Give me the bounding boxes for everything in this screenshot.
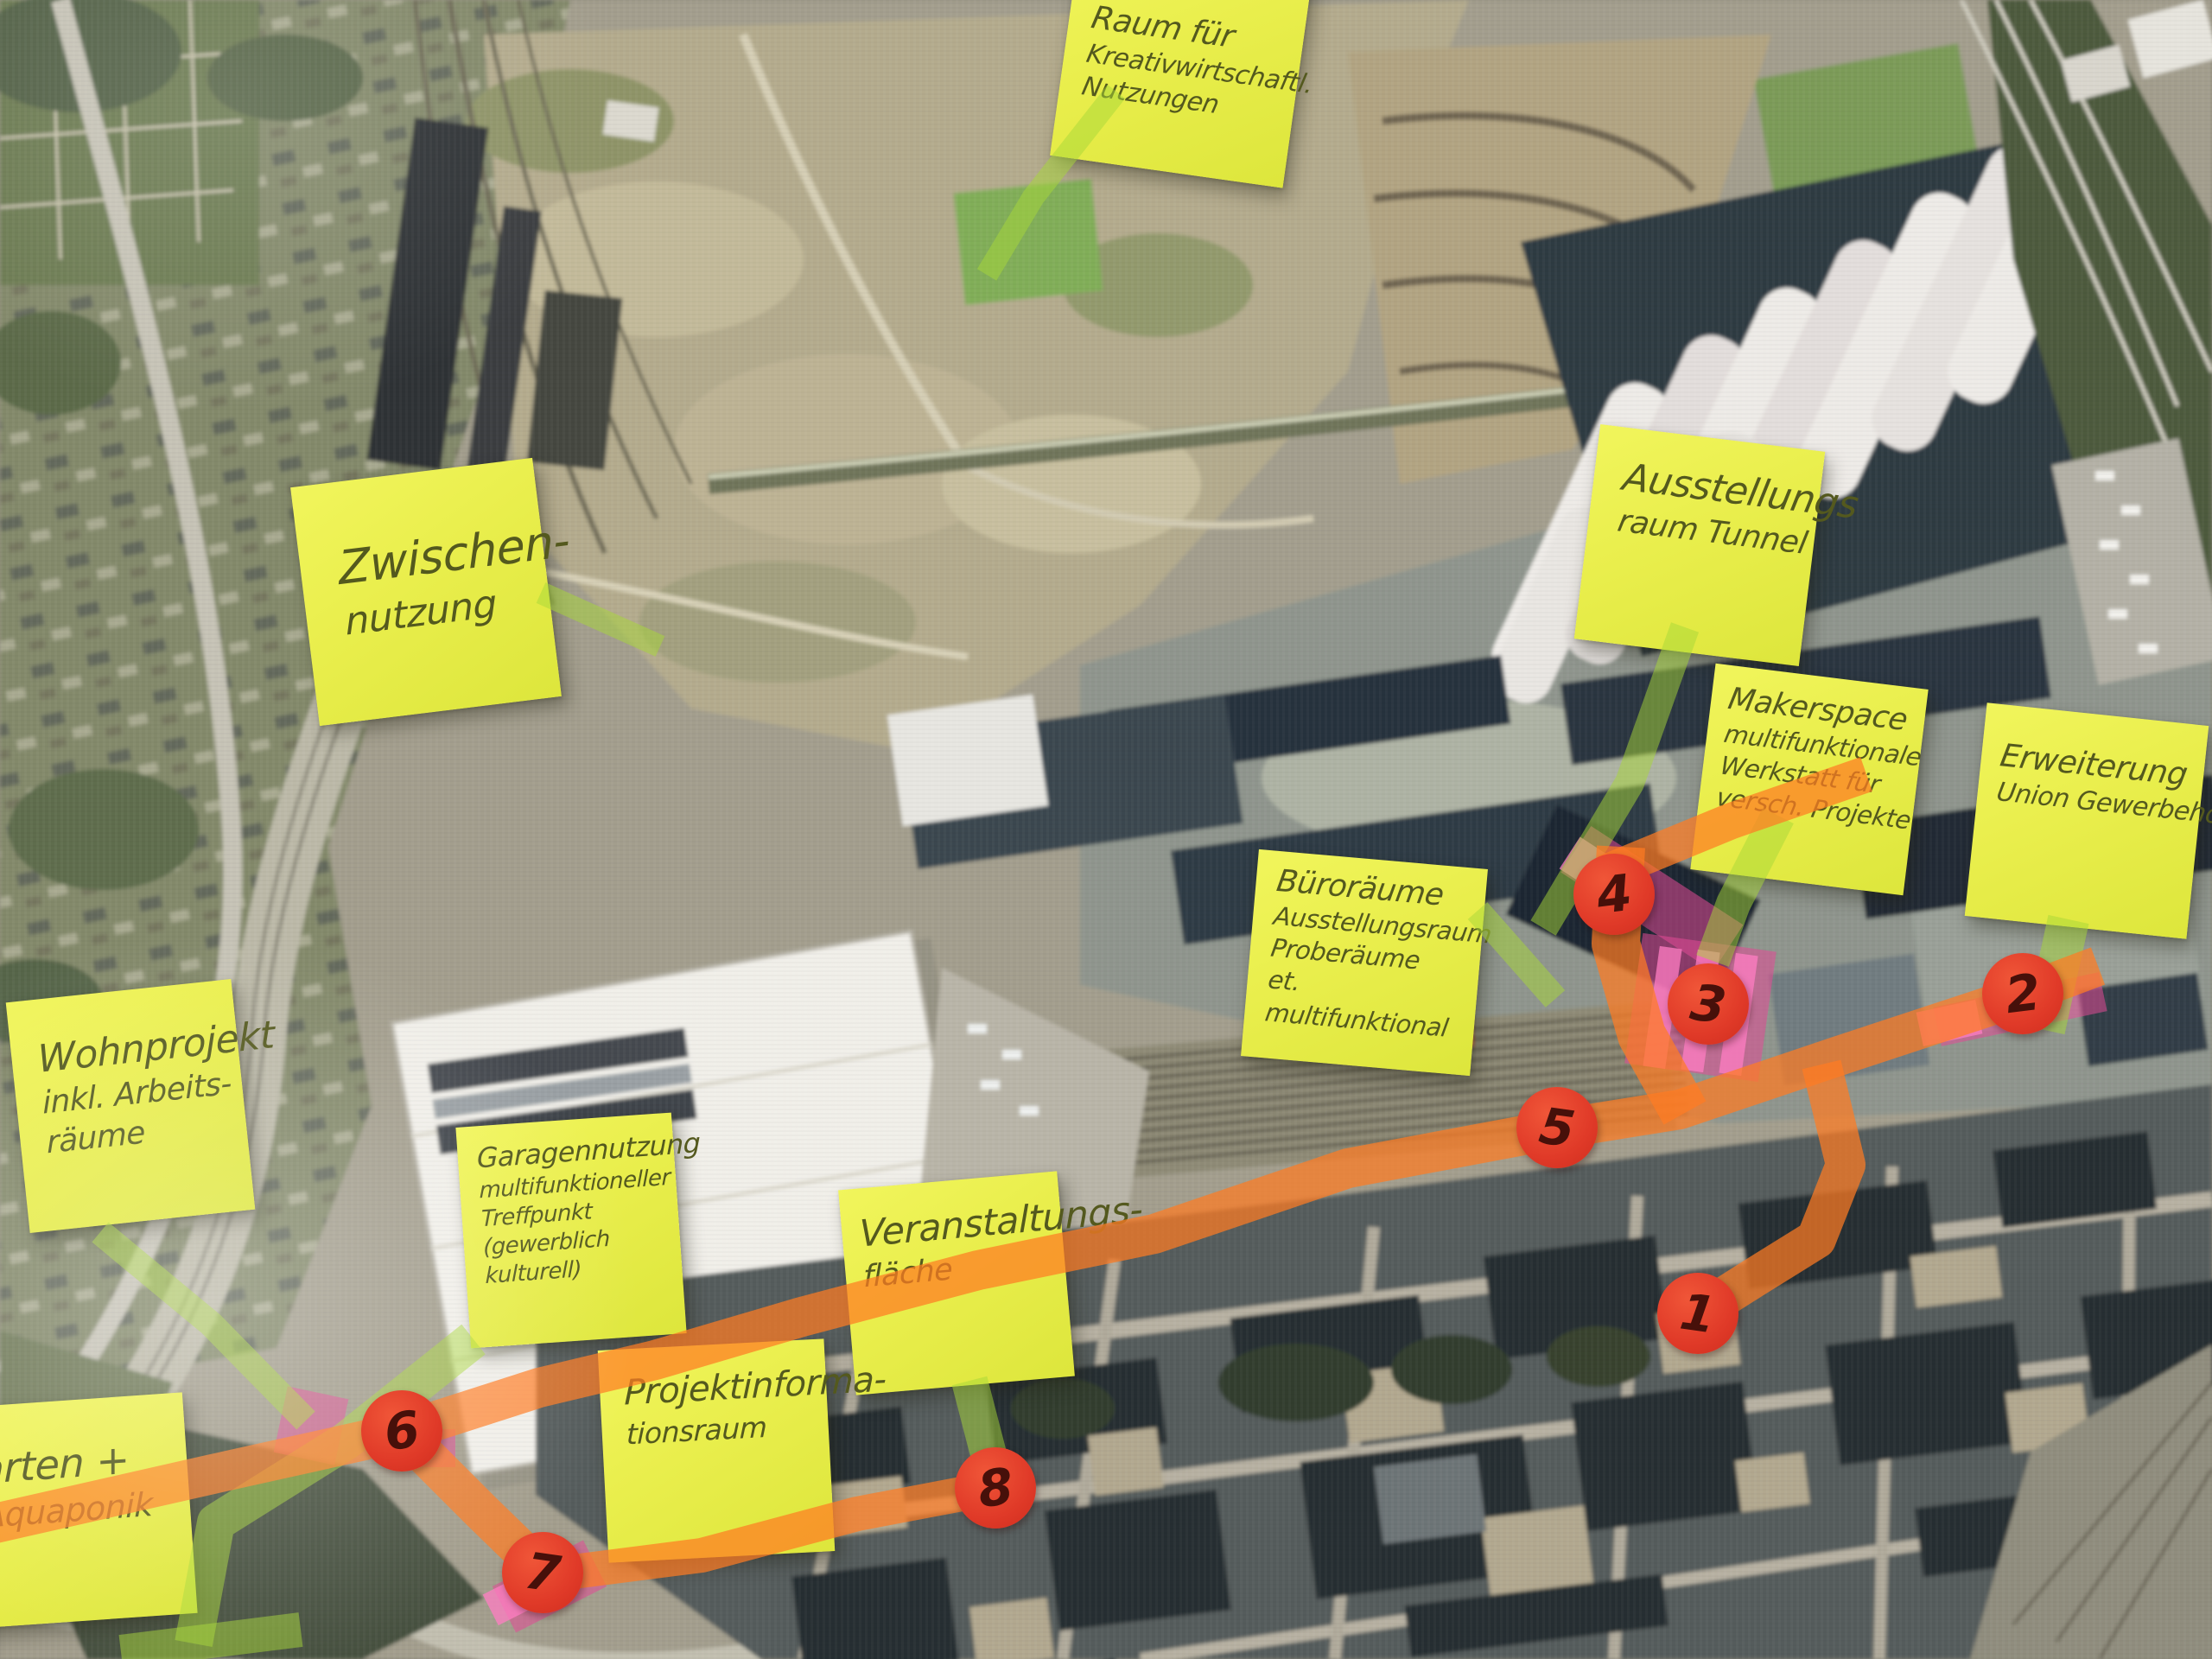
route-marker-1[interactable]: 1 [1657, 1273, 1738, 1354]
sticky-note-garagennutzung[interactable]: GaragennutzungmultifunktionellerTreffpun… [455, 1113, 686, 1349]
sticky-note-makerspace[interactable]: MakerspacemultifunktionaleWerkstatt fürv… [1690, 664, 1928, 895]
route-marker-2[interactable]: 2 [1982, 953, 2063, 1034]
route-marker-4[interactable]: 4 [1573, 854, 1655, 935]
sticky-note-zwischennutzung[interactable]: Zwischen-nutzung [290, 458, 562, 726]
route-marker-7[interactable]: 7 [502, 1532, 583, 1613]
workshop-map-board: Raum fürKreativwirtschaftl.NutzungenZwis… [0, 0, 2212, 1659]
route-marker-number: 2 [2002, 963, 2044, 1025]
sticky-note-projektinformationsraum[interactable]: Projektinforma-tionsraum [598, 1338, 836, 1562]
route-marker-5[interactable]: 5 [1516, 1087, 1598, 1168]
sticky-note-erweiterung-union-gewerbehof[interactable]: ErweiterungUnion Gewerbehof [1965, 702, 2209, 939]
route-marker-number: 7 [521, 1541, 563, 1605]
route-marker-number: 8 [975, 1457, 1016, 1519]
route-marker-number: 4 [1593, 863, 1635, 925]
sticky-note-raum-kreativwirtschaft[interactable]: Raum fürKreativwirtschaftl.Nutzungen [1050, 0, 1314, 188]
route-marker-number: 6 [381, 1400, 423, 1462]
route-marker-8[interactable]: 8 [955, 1447, 1036, 1529]
route-marker-number: 5 [1535, 1096, 1578, 1160]
sticky-note-wohnprojekt[interactable]: Wohnprojektinkl. Arbeits-räume [6, 979, 256, 1233]
sticky-note-gaerten-aquaponik[interactable]: arten +Aquaponik [0, 1392, 198, 1628]
sticky-note-ausstellungsraum-tunnel[interactable]: Ausstellungsraum Tunnel [1574, 424, 1826, 666]
route-marker-number: 1 [1676, 1282, 1719, 1345]
route-marker-6[interactable]: 6 [361, 1390, 442, 1471]
route-marker-number: 3 [1687, 973, 1729, 1036]
route-marker-3[interactable]: 3 [1668, 963, 1749, 1045]
sticky-note-bueroraeume[interactable]: BüroräumeAusstellungsraumProberäumeet.mu… [1241, 849, 1488, 1076]
